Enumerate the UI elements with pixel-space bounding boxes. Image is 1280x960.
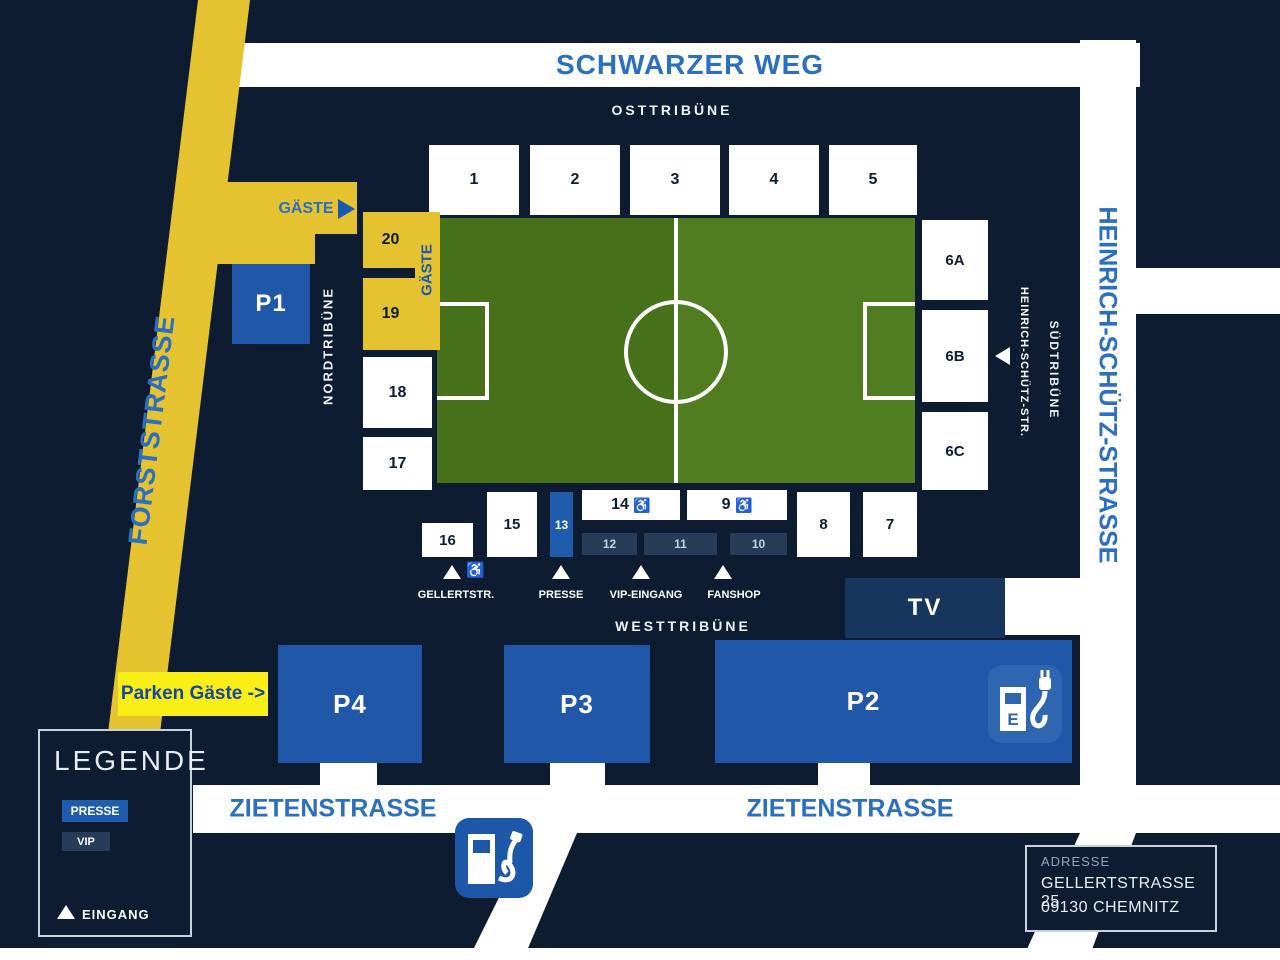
parking-p4: P4 <box>278 645 422 763</box>
parking-p2-label: P2 <box>847 686 881 717</box>
section-15: 15 <box>487 492 537 557</box>
ev-charging-icon: E <box>988 665 1062 743</box>
guest-parking-hint: Parken Gäste -> <box>118 672 268 716</box>
section-17: 17 <box>363 437 432 490</box>
section-2-label: 2 <box>571 171 580 189</box>
section-18-label: 18 <box>389 384 407 402</box>
street-schwarzer-weg: SCHWARZER WEG <box>556 49 824 81</box>
section-4-label: 4 <box>770 171 779 189</box>
wheelchair-glyph: ♿ <box>466 562 485 579</box>
pitch-center-circle <box>624 300 728 404</box>
section-5: 5 <box>829 145 917 215</box>
guest-route-pad-p1 <box>215 234 315 264</box>
tv-area: TV <box>845 578 1005 638</box>
guest-parking-hint-label: Parken Gäste -> <box>121 683 265 705</box>
entrance-vip-icon <box>632 565 650 579</box>
address-heading: ADRESSE <box>1041 854 1110 869</box>
section-6c: 6C <box>922 412 988 490</box>
entrance-heinrich-schuetz-icon <box>995 347 1010 365</box>
stadium-map: GÄSTE SCHWARZER WEG FORSTSTRASSE HEINRIC… <box>0 0 1280 960</box>
address-box: ADRESSE GELLERTSTRASSE 25 09130 CHEMNITZ <box>1025 845 1217 932</box>
wheelchair-icon: ♿ <box>633 497 650 514</box>
legend-presse-label: PRESSE <box>71 804 120 818</box>
entrance-fanshop-icon <box>714 565 732 579</box>
section-3: 3 <box>630 145 720 215</box>
stand-osttribuene: OSTTRIBÜNE <box>612 102 733 118</box>
section-7: 7 <box>863 492 917 557</box>
entrance-gellertstr-icon <box>443 565 461 579</box>
section-6a: 6A <box>922 220 988 300</box>
legend-box: LEGENDE PRESSE VIP EINGANG <box>38 729 192 937</box>
section-4: 4 <box>729 145 819 215</box>
section-3-label: 3 <box>671 171 680 189</box>
street-zietenstrasse-east: ZIETENSTRASSE <box>747 795 954 824</box>
section-1-label: 1 <box>470 171 479 189</box>
section-6c-label: 6C <box>945 443 964 460</box>
parking-p4-label: P4 <box>333 689 367 720</box>
legend-eingang-icon <box>57 905 75 919</box>
section-15-label: 15 <box>504 516 521 533</box>
parking-p3: P3 <box>504 645 650 763</box>
pitch-penalty-left <box>437 302 489 400</box>
wheelchair-icon: ♿ <box>466 561 485 579</box>
section-17-label: 17 <box>389 455 407 473</box>
section-2: 2 <box>530 145 620 215</box>
entrance-presse-icon <box>552 565 570 579</box>
section-11-label: 11 <box>674 537 687 551</box>
stand-nordtribuene: NORDTRIBÜNE <box>321 287 336 405</box>
section-5-label: 5 <box>869 171 878 189</box>
guest-stand-label: GÄSTE <box>419 244 436 296</box>
guest-arrow-right-icon <box>338 199 355 219</box>
legend-vip-label: VIP <box>77 836 95 848</box>
address-city: 09130 CHEMNITZ <box>1041 899 1180 917</box>
section-16-label: 16 <box>439 532 456 549</box>
entrance-fanshop-label: FANSHOP <box>707 589 760 601</box>
section-8: 8 <box>797 492 850 557</box>
section-1: 1 <box>429 145 519 215</box>
entrance-gellertstr-label: GELLERTSTR. <box>418 589 494 601</box>
legend-title: LEGENDE <box>54 745 209 777</box>
guest-route-text: GÄSTE <box>278 200 333 217</box>
section-6a-label: 6A <box>945 252 964 269</box>
section-16: 16 <box>422 523 473 557</box>
section-13-label: 13 <box>555 518 568 532</box>
road-forststrasse <box>108 0 250 733</box>
section-9: 9 ♿ <box>687 490 787 520</box>
section-14-label: 14 <box>611 496 629 514</box>
section-18: 18 <box>363 357 432 428</box>
legend-vip-chip: VIP <box>62 832 110 851</box>
section-14: 14 ♿ <box>582 490 680 520</box>
legend-eingang-label: EINGANG <box>82 907 150 922</box>
legend-presse-chip: PRESSE <box>62 800 128 822</box>
section-12-label: 12 <box>603 537 616 551</box>
entrance-vip-label: VIP-EINGANG <box>610 589 683 601</box>
guest-route-label: GÄSTE <box>278 200 333 218</box>
street-zietenstrasse-west: ZIETENSTRASSE <box>230 795 437 824</box>
section-20-label: 20 <box>382 231 400 249</box>
street-heinrich-schuetz-strasse: HEINRICH-SCHÜTZ-STRASSE <box>1093 207 1122 564</box>
section-7-label: 7 <box>886 516 894 533</box>
parking-p1-label: P1 <box>255 290 286 318</box>
wheelchair-icon: ♿ <box>735 497 752 514</box>
section-12-vip: 12 <box>582 533 637 555</box>
section-6b: 6B <box>922 310 988 402</box>
section-10-vip: 10 <box>730 533 787 555</box>
pitch-penalty-right <box>863 302 915 400</box>
stand-westtribuene: WESTTRIBÜNE <box>615 618 751 634</box>
section-9-label: 9 <box>722 496 731 514</box>
entrance-presse-label: PRESSE <box>539 589 584 601</box>
section-11-vip: 11 <box>644 533 717 555</box>
gas-station-icon <box>455 818 533 898</box>
ev-e-label: E <box>1007 710 1018 729</box>
section-13-press: 13 <box>550 492 573 557</box>
stand-suedtribuene: SÜDTRIBÜNE <box>1047 321 1061 420</box>
section-8-label: 8 <box>819 516 827 533</box>
section-6b-label: 6B <box>945 348 964 365</box>
section-10-label: 10 <box>752 537 765 551</box>
parking-p1: P1 <box>232 264 310 344</box>
tv-label: TV <box>908 594 943 622</box>
parking-p3-label: P3 <box>560 689 594 720</box>
section-19-label: 19 <box>382 305 400 323</box>
street-heinrich-schuetz-str-short: HEINRICH-SCHÜTZ-STR. <box>1018 287 1030 437</box>
